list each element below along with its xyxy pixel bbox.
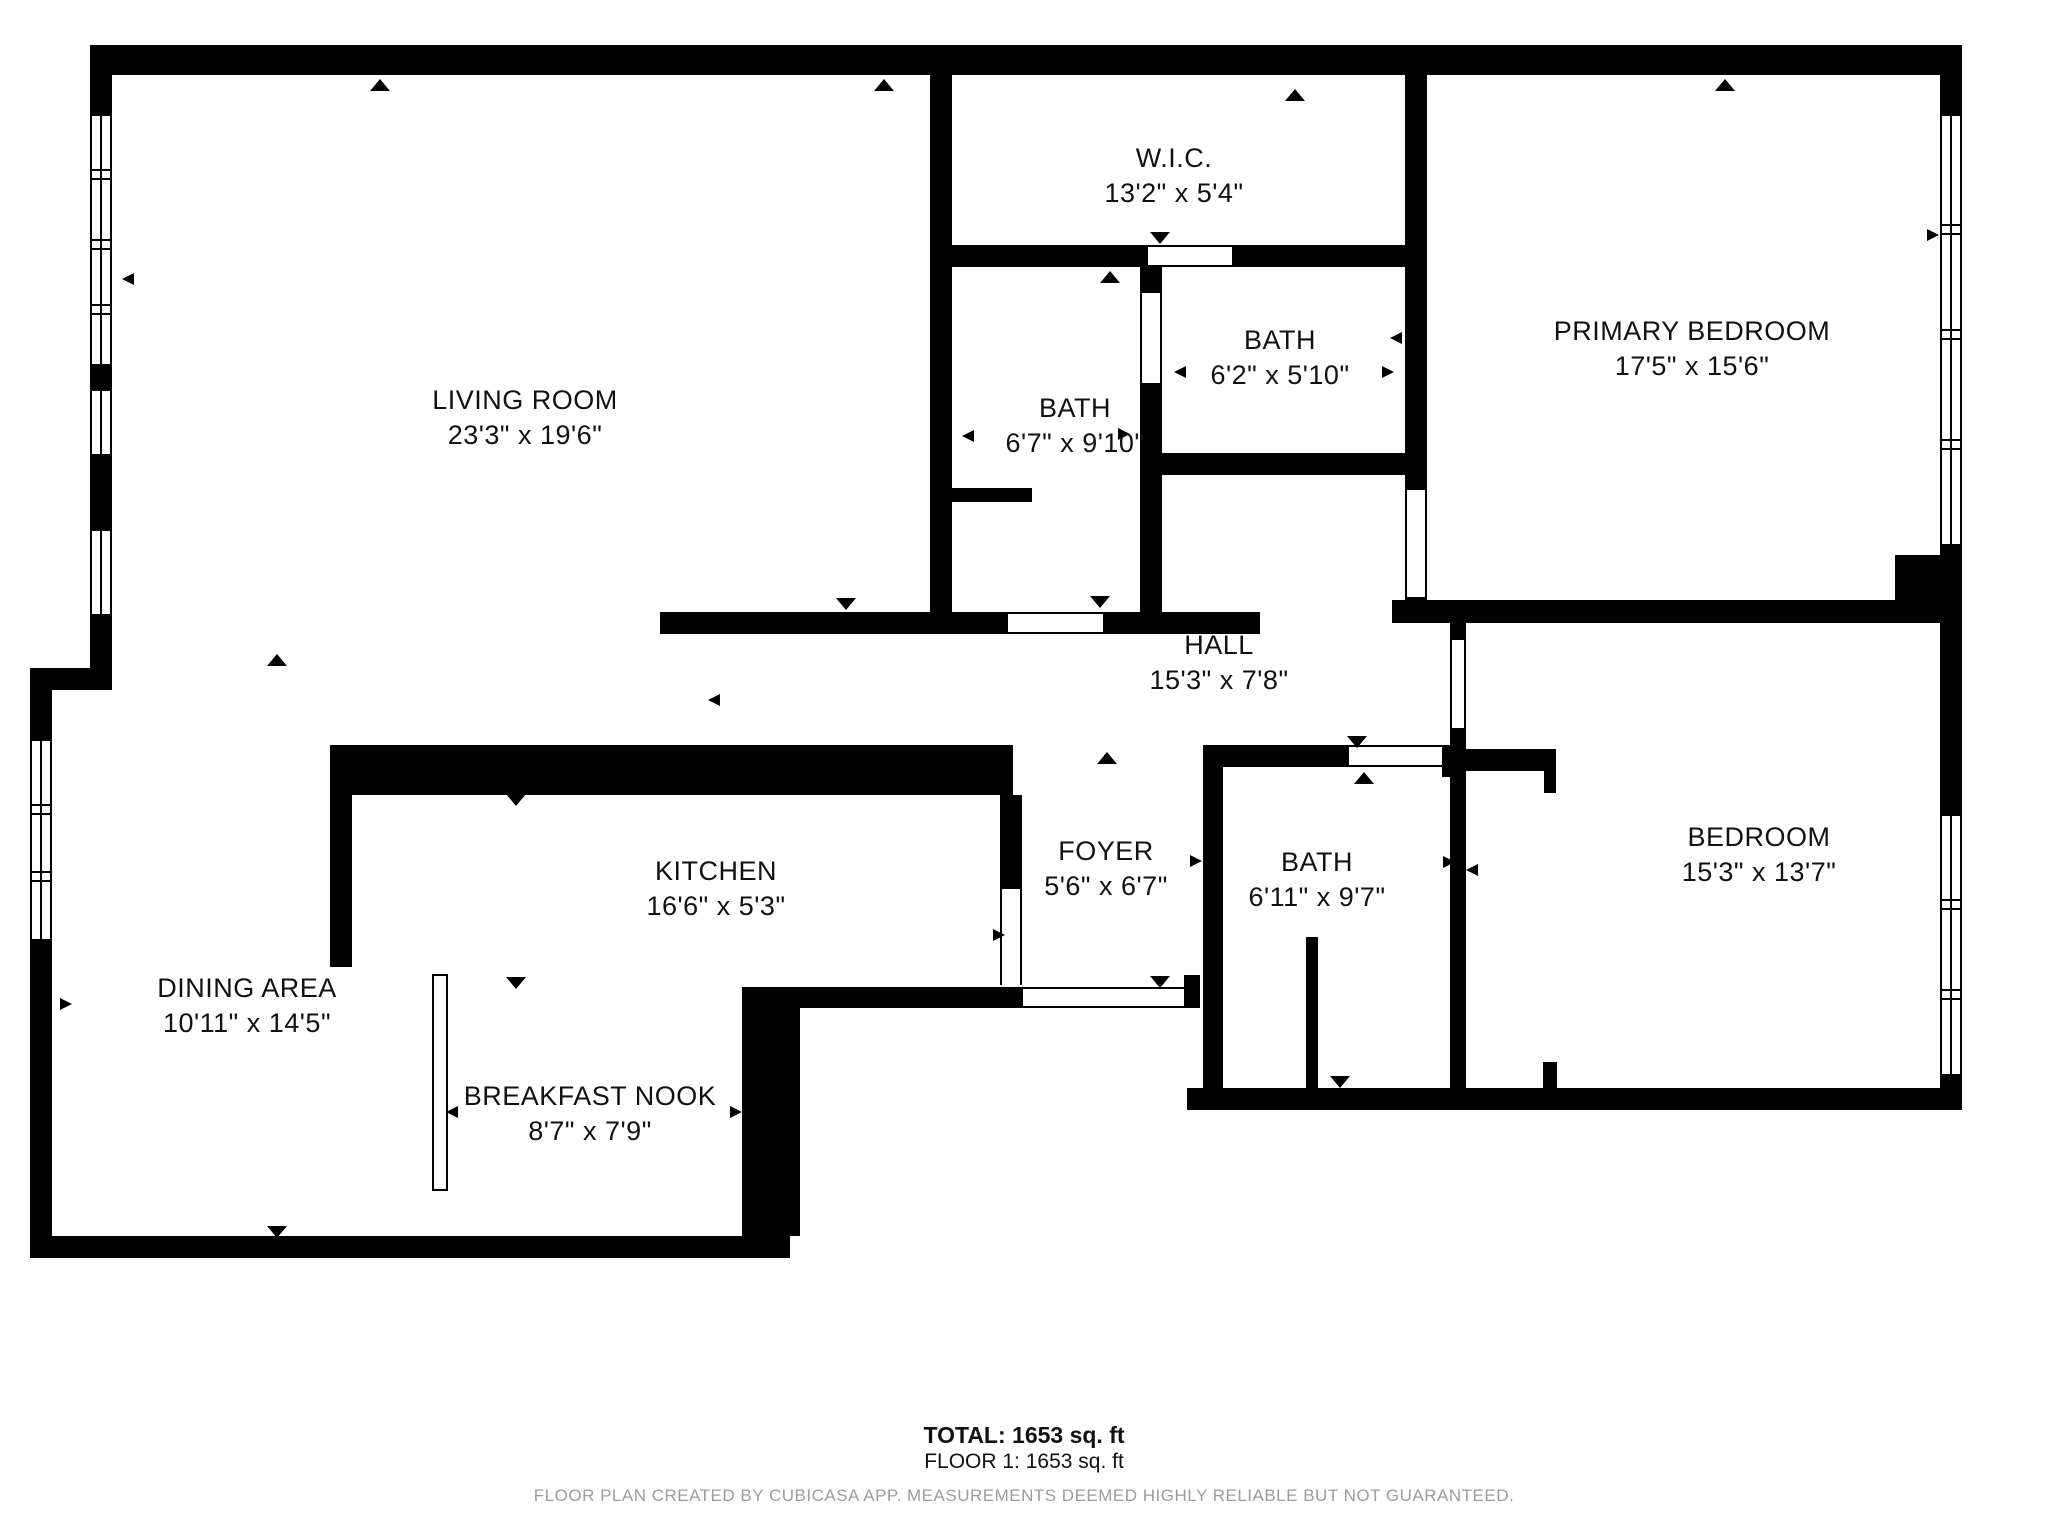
dimension-arrow-icon xyxy=(1100,271,1120,283)
room-dimensions: 10'11" x 14'5" xyxy=(157,1006,337,1041)
window xyxy=(91,115,111,365)
door-opening xyxy=(1140,293,1162,383)
room-name: DINING AREA xyxy=(157,973,337,1003)
dimension-arrow-icon xyxy=(1927,229,1939,241)
dimension-arrow-icon xyxy=(1285,89,1305,101)
window xyxy=(31,740,51,940)
room-label-living-room: LIVING ROOM23'3" x 19'6" xyxy=(432,383,618,453)
room-label-primary-bedroom: PRIMARY BEDROOM17'5" x 15'6" xyxy=(1554,314,1831,384)
window xyxy=(91,390,111,455)
room-dimensions: 6'7" x 9'10" xyxy=(1005,426,1144,461)
door-opening xyxy=(1000,889,1022,985)
dimension-arrow-icon xyxy=(1150,976,1170,988)
disclaimer-text: FLOOR PLAN CREATED BY CUBICASA APP. MEAS… xyxy=(0,1486,2048,1506)
dimension-arrow-icon xyxy=(730,1106,742,1118)
dimension-arrow-icon xyxy=(267,654,287,666)
room-name: HALL xyxy=(1184,630,1254,660)
window xyxy=(1941,115,1961,545)
room-label-wic: W.I.C.13'2" x 5'4" xyxy=(1104,141,1243,211)
room-label-hall: HALL15'3" x 7'8" xyxy=(1149,628,1288,698)
dimension-arrow-icon xyxy=(1330,1076,1350,1088)
total-area-text: TOTAL: 1653 sq. ft xyxy=(0,1422,2048,1449)
floor-plan-canvas xyxy=(0,0,2048,1536)
dimension-arrow-icon xyxy=(1097,752,1117,764)
room-name: BATH xyxy=(1244,325,1316,355)
dimension-arrow-icon xyxy=(1190,855,1202,867)
room-name: PRIMARY BEDROOM xyxy=(1554,316,1831,346)
floor-plan-page: { "rooms": [ {"name": "LIVING ROOM", "di… xyxy=(0,0,2048,1536)
dimension-arrow-icon xyxy=(122,273,134,285)
room-dimensions: 5'6" x 6'7" xyxy=(1044,869,1168,904)
room-label-foyer: FOYER5'6" x 6'7" xyxy=(1044,834,1168,904)
dimension-arrow-icon xyxy=(1174,366,1186,378)
room-name: BATH xyxy=(1039,393,1111,423)
dimension-arrow-icon xyxy=(506,794,526,806)
room-label-breakfast-nook: BREAKFAST NOOK8'7" x 7'9" xyxy=(464,1079,717,1149)
room-dimensions: 6'2" x 5'10" xyxy=(1210,358,1349,393)
room-dimensions: 15'3" x 7'8" xyxy=(1149,663,1288,698)
window xyxy=(1941,815,1961,1075)
room-name: LIVING ROOM xyxy=(432,385,618,415)
dimension-arrow-icon xyxy=(836,598,856,610)
dimension-arrow-icon xyxy=(874,79,894,91)
dimension-arrow-icon xyxy=(962,430,974,442)
dimension-arrow-icon xyxy=(1715,79,1735,91)
room-dimensions: 8'7" x 7'9" xyxy=(464,1114,717,1149)
dimension-arrow-icon xyxy=(506,977,526,989)
room-name: FOYER xyxy=(1058,836,1154,866)
room-name: BATH xyxy=(1281,847,1353,877)
dimension-arrow-icon xyxy=(60,998,72,1010)
entry-door-opening xyxy=(1023,987,1184,1008)
floor-area-text: FLOOR 1: 1653 sq. ft xyxy=(0,1450,2048,1474)
room-label-bath-1: BATH6'7" x 9'10" xyxy=(1005,391,1144,461)
room-dimensions: 13'2" x 5'4" xyxy=(1104,176,1243,211)
room-dimensions: 16'6" x 5'3" xyxy=(646,889,785,924)
room-label-dining-area: DINING AREA10'11" x 14'5" xyxy=(157,971,337,1041)
dimension-arrow-icon xyxy=(370,79,390,91)
door-opening xyxy=(1349,745,1442,767)
door-opening xyxy=(1008,612,1103,634)
room-label-kitchen: KITCHEN16'6" x 5'3" xyxy=(646,854,785,924)
room-name: W.I.C. xyxy=(1136,143,1213,173)
room-dimensions: 23'3" x 19'6" xyxy=(432,418,618,453)
room-dimensions: 15'3" x 13'7" xyxy=(1682,855,1837,890)
dimension-arrow-icon xyxy=(1390,332,1402,344)
walls xyxy=(30,45,1962,1258)
room-label-bath-2: BATH6'2" x 5'10" xyxy=(1210,323,1349,393)
room-name: KITCHEN xyxy=(655,856,777,886)
door-panel xyxy=(433,975,447,1190)
room-label-bath-3: BATH6'11" x 9'7" xyxy=(1248,845,1385,915)
dimension-arrow-icon xyxy=(708,694,720,706)
door-opening xyxy=(1450,640,1466,728)
room-label-bedroom: BEDROOM15'3" x 13'7" xyxy=(1682,820,1837,890)
dimension-arrow-icon xyxy=(1150,232,1170,244)
window xyxy=(91,530,111,615)
door-opening xyxy=(1405,490,1427,597)
dimension-arrow-icon xyxy=(1382,366,1394,378)
room-name: BREAKFAST NOOK xyxy=(464,1081,717,1111)
room-name: BEDROOM xyxy=(1687,822,1830,852)
dimension-arrow-icon xyxy=(1354,772,1374,784)
door-opening xyxy=(1148,245,1232,267)
dimension-arrow-icon xyxy=(1466,864,1478,876)
room-dimensions: 17'5" x 15'6" xyxy=(1554,349,1831,384)
room-dimensions: 6'11" x 9'7" xyxy=(1248,880,1385,915)
dimension-arrow-icon xyxy=(1090,596,1110,608)
